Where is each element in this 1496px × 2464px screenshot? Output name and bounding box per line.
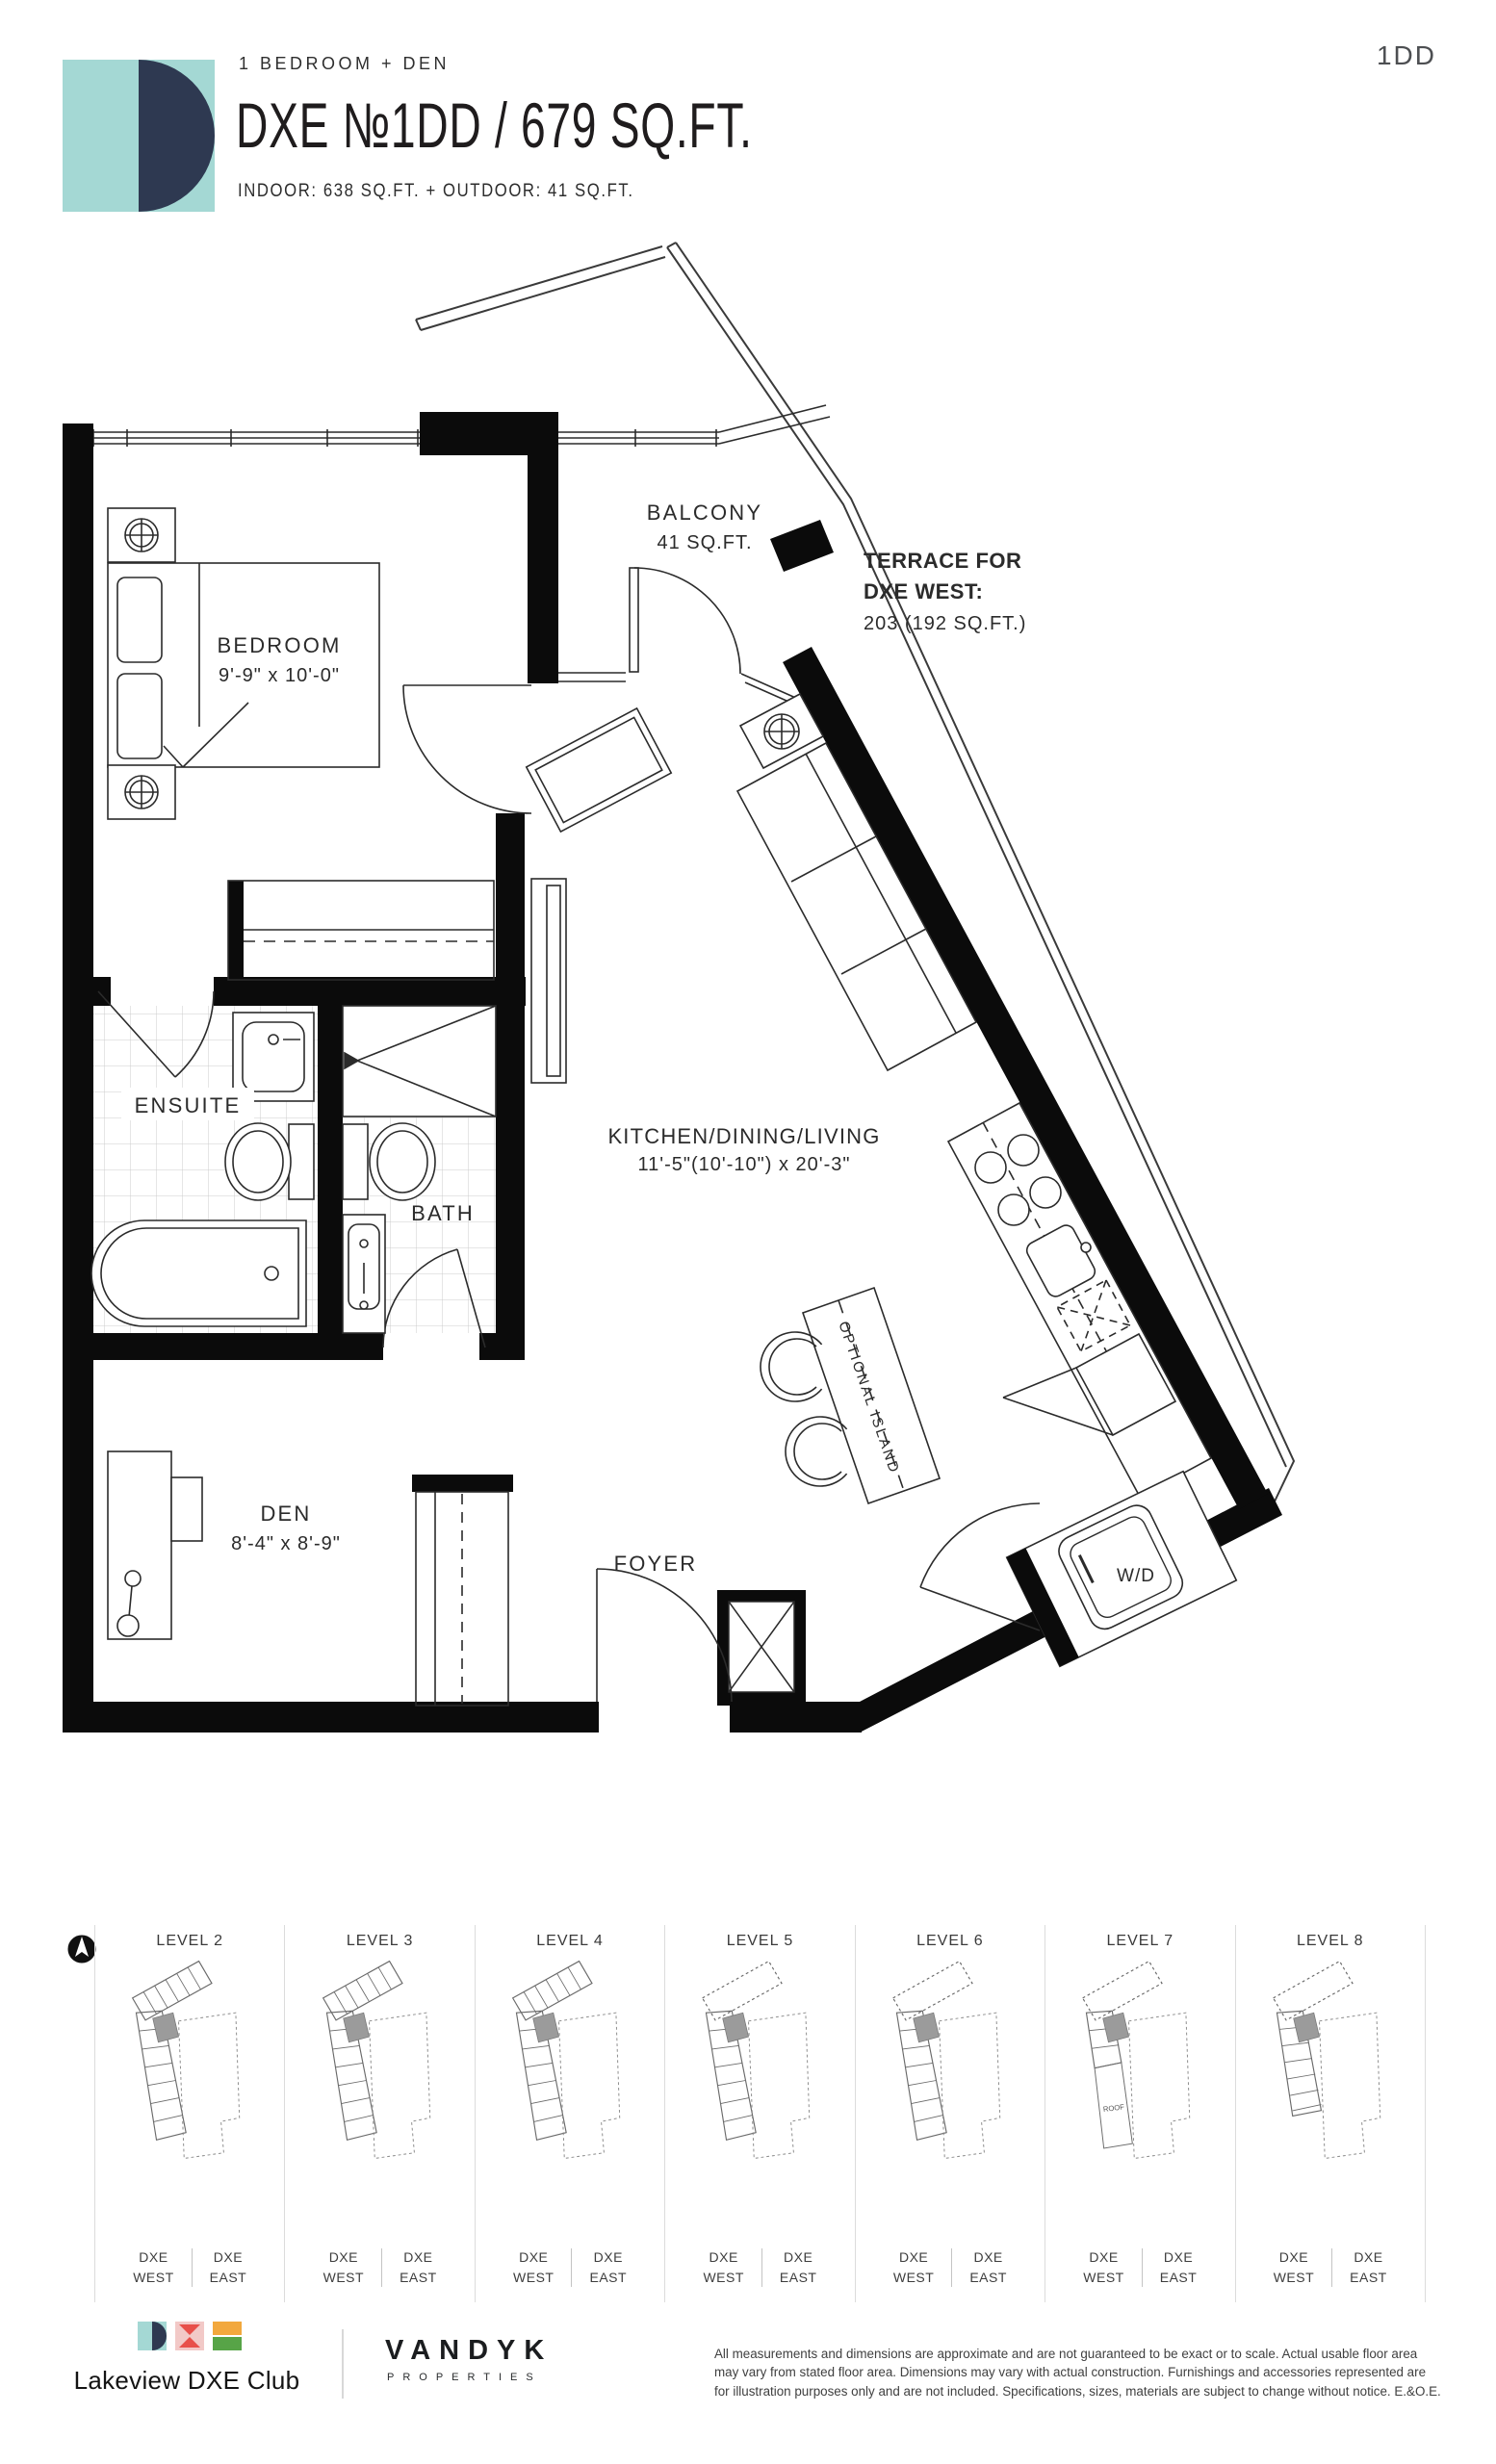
dxe-east-label: DXEEAST	[780, 2247, 817, 2289]
dxe-west-label: DXEWEST	[703, 2247, 743, 2289]
coffee-table	[527, 708, 671, 832]
disclaimer-text: All measurements and dimensions are appr…	[714, 2345, 1442, 2400]
unit-highlight	[1293, 2013, 1319, 2042]
levels-row: LEVEL 2DXEWESTDXEEASTLEVEL 3DXEWESTDXEEA…	[94, 1925, 1426, 2302]
wing-divider	[381, 2248, 382, 2287]
level-thumb: ROOF	[1072, 1952, 1207, 2169]
level-title: LEVEL 2	[156, 1933, 223, 1950]
dxe-west-label: DXEWEST	[323, 2247, 364, 2289]
bedroom-label: BEDROOM	[217, 633, 341, 657]
logo-square-e	[213, 2322, 242, 2350]
level-title: LEVEL 3	[347, 1933, 414, 1950]
level-title: LEVEL 7	[1107, 1933, 1174, 1950]
foyer-closet	[416, 1492, 508, 1706]
level-thumb	[503, 1952, 637, 2169]
roof-label: ROOF	[1103, 2102, 1125, 2114]
level-wing-labels: DXEWESTDXEEAST	[1274, 2247, 1387, 2289]
ensuite-label: ENSUITE	[135, 1093, 242, 1117]
wing-divider	[951, 2248, 952, 2287]
dxe-east-label: DXEEAST	[969, 2247, 1007, 2289]
dxe-west-label: DXEWEST	[513, 2247, 554, 2289]
foyer-label: FOYER	[614, 1552, 698, 1576]
unit-highlight	[723, 2013, 749, 2042]
wd-label: W/D	[1117, 1566, 1155, 1586]
level-thumb	[692, 1952, 827, 2169]
floorplan-sheet: 1 BEDROOM + DEN DXE №1DD / 679 SQ.FT. IN…	[0, 0, 1496, 2464]
unit-highlight	[1103, 2013, 1129, 2042]
den-dims: 8'-4" x 8'-9"	[231, 1533, 341, 1554]
wardrobe	[228, 881, 494, 980]
wing-divider	[1331, 2248, 1332, 2287]
terrace-label-3: 203 (192 SQ.FT.)	[864, 613, 1026, 634]
den-desk	[108, 1451, 202, 1639]
level-wing-labels: DXEWESTDXEEAST	[133, 2247, 246, 2289]
level-thumb	[313, 1952, 448, 2169]
logo-square-x	[175, 2322, 204, 2350]
dxe-west-label: DXEWEST	[1083, 2247, 1123, 2289]
unit-highlight	[343, 2013, 369, 2042]
dxe-east-label: DXEEAST	[1160, 2247, 1198, 2289]
level-thumb	[1263, 1952, 1398, 2169]
dxe-west-label: DXEWEST	[133, 2247, 173, 2289]
unit-highlight	[533, 2013, 559, 2042]
dxe-east-label: DXEEAST	[210, 2247, 247, 2289]
wing-divider	[1142, 2248, 1143, 2287]
logo-square-d	[138, 2322, 167, 2350]
level-cell: LEVEL 3DXEWESTDXEEAST	[284, 1925, 474, 2302]
kitchen-dims: 11'-5"(10'-10") x 20'-3"	[638, 1154, 851, 1175]
level-cell: LEVEL 4DXEWESTDXEEAST	[475, 1925, 664, 2302]
level-cell: LEVEL 2DXEWESTDXEEAST	[94, 1925, 284, 2302]
balcony-label: BALCONY	[647, 500, 763, 525]
bedroom-window-band	[93, 429, 420, 447]
terrace-label-1: TERRACE FOR	[864, 549, 1021, 573]
developer-logo: VANDYK	[385, 2335, 553, 2367]
dxe-east-label: DXEEAST	[589, 2247, 627, 2289]
dxe-west-label: DXEWEST	[1274, 2247, 1314, 2289]
pantry-cabinet	[531, 879, 566, 1083]
unit-highlight	[153, 2013, 179, 2042]
level-wing-labels: DXEWESTDXEEAST	[513, 2247, 627, 2289]
level-cell: LEVEL 5DXEWESTDXEEAST	[664, 1925, 854, 2302]
brand-name: Lakeview DXE Club	[56, 2366, 318, 2396]
level-cell: LEVEL 8DXEWESTDXEEAST	[1235, 1925, 1425, 2302]
level-wing-labels: DXEWESTDXEEAST	[893, 2247, 1007, 2289]
dxe-west-label: DXEWEST	[893, 2247, 934, 2289]
den-label: DEN	[260, 1501, 311, 1526]
dxe-east-label: DXEEAST	[1350, 2247, 1387, 2289]
terrace-label-2: DXE WEST:	[864, 579, 983, 603]
level-title: LEVEL 4	[536, 1933, 604, 1950]
wing-divider	[571, 2248, 572, 2287]
level-cell: LEVEL 6DXEWESTDXEEAST	[855, 1925, 1045, 2302]
level-title: LEVEL 5	[727, 1933, 794, 1950]
level-wing-labels: DXEWESTDXEEAST	[323, 2247, 437, 2289]
footer-divider	[342, 2329, 344, 2399]
lakeview-logo-squares	[138, 2320, 245, 2352]
level-cell: LEVEL 7ROOFDXEWESTDXEEAST	[1045, 1925, 1234, 2302]
level-thumb	[122, 1952, 257, 2169]
bedroom-dims: 9'-9" x 10'-0"	[219, 665, 340, 686]
level-title: LEVEL 6	[916, 1933, 984, 1950]
wing-divider	[192, 2248, 193, 2287]
floor-plan: BALCONY 41 SQ.FT. TERRACE FOR DXE WEST: …	[0, 0, 1496, 1829]
level-wing-labels: DXEWESTDXEEAST	[703, 2247, 816, 2289]
kitchen-label: KITCHEN/DINING/LIVING	[607, 1124, 880, 1148]
bath-label: BATH	[411, 1201, 475, 1225]
level-wing-labels: DXEWESTDXEEAST	[1083, 2247, 1197, 2289]
level-thumb	[883, 1952, 1018, 2169]
developer-sub: PROPERTIES	[387, 2372, 542, 2383]
level-title: LEVEL 8	[1297, 1933, 1364, 1950]
wing-divider	[761, 2248, 762, 2287]
dxe-east-label: DXEEAST	[400, 2247, 437, 2289]
unit-highlight	[914, 2013, 940, 2042]
balcony-area: 41 SQ.FT.	[657, 532, 752, 553]
